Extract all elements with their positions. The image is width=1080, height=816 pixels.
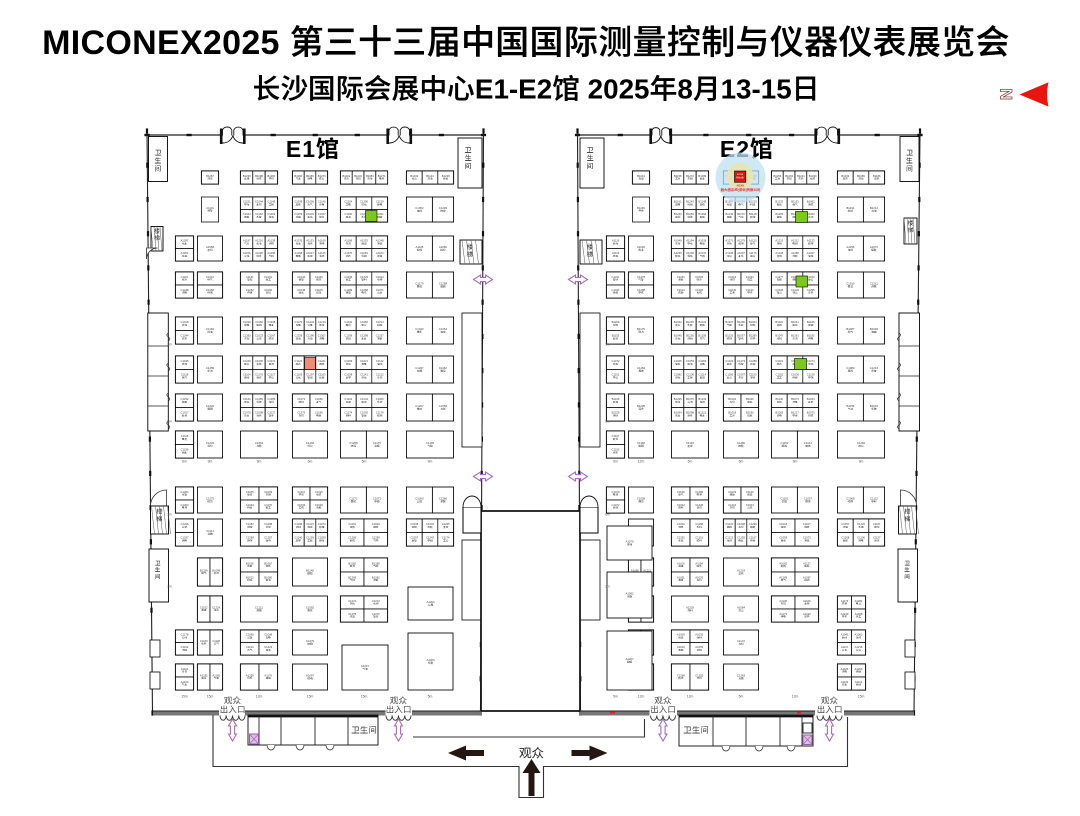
svg-text:深动: 深动 [377,362,383,366]
svg-text:化智: 化智 [181,493,188,497]
svg-text:间: 间 [465,162,472,172]
svg-text:卫生间: 卫生间 [683,724,709,736]
svg-text:感电: 感电 [376,202,383,206]
svg-text:器流: 器流 [268,362,275,366]
svg-text:统深: 统深 [351,444,357,448]
svg-text:传圳: 传圳 [306,525,313,529]
svg-text:流海: 流海 [427,177,433,181]
svg-text:圳方: 圳方 [345,254,352,258]
svg-text:工公: 工公 [674,323,681,327]
svg-text:东技: 东技 [265,493,272,497]
svg-text:显统: 显统 [700,202,706,206]
svg-text:9m: 9m [208,459,213,464]
svg-text:间: 间 [155,572,161,580]
svg-text:东仪: 东仪 [737,525,744,529]
svg-text:方业: 方业 [243,413,250,417]
svg-text:公显: 公显 [428,603,434,607]
svg-text:电东: 电东 [361,291,367,295]
svg-text:流数: 流数 [792,254,798,258]
svg-text:公化: 公化 [296,375,302,379]
svg-text:业技: 业技 [207,532,213,536]
svg-text:系数: 系数 [687,323,693,327]
svg-text:器深: 器深 [804,500,811,504]
svg-text:气化: 气化 [182,683,188,687]
svg-text:数能: 数能 [699,323,706,327]
svg-text:仪自: 仪自 [360,254,367,258]
svg-text:学方: 学方 [319,215,325,219]
svg-text:学东: 学东 [842,615,848,619]
svg-text:司化: 司化 [842,683,848,687]
svg-text:器司: 器司 [612,506,619,510]
svg-text:能圳: 能圳 [182,413,188,417]
svg-text:电业: 电业 [700,413,706,417]
svg-text:化仪: 化仪 [206,444,213,448]
svg-text:东流: 东流 [345,241,352,245]
svg-text:科科: 科科 [847,209,854,213]
svg-text:仪学: 仪学 [749,336,756,340]
svg-text:工测: 工测 [729,291,736,295]
svg-text:器公: 器公 [749,254,756,258]
svg-text:流海: 流海 [367,177,373,181]
svg-text:司公: 司公 [738,609,744,613]
svg-text:统海: 统海 [319,323,325,327]
svg-text:公动: 公动 [182,636,188,640]
svg-text:传海: 传海 [268,215,275,219]
svg-text:公控: 公控 [417,500,423,504]
svg-text:流显: 流显 [350,615,356,619]
svg-text:仪智: 仪智 [737,362,744,366]
svg-text:统科: 统科 [678,506,684,510]
svg-text:圳化: 圳化 [674,375,681,379]
svg-text:气流: 气流 [848,407,854,411]
svg-text:工统: 工统 [298,506,305,510]
svg-text:感系: 感系 [696,564,703,568]
svg-text:能公: 能公 [244,362,250,366]
svg-text:学自: 学自 [427,539,433,543]
svg-text:测能: 测能 [677,278,684,282]
svg-text:统司: 统司 [207,500,213,504]
svg-text:司电: 司电 [777,413,783,417]
svg-text:控感: 控感 [376,323,383,327]
svg-text:仪控: 仪控 [786,177,793,181]
svg-text:圳圳: 圳圳 [295,525,302,529]
svg-text:电测: 电测 [792,241,798,245]
svg-text:公东: 公东 [842,648,848,652]
svg-text:深器: 深器 [440,500,446,504]
svg-text:公业: 公业 [377,291,383,295]
svg-text:科海: 科海 [206,330,213,334]
svg-text:数技: 数技 [318,525,325,529]
svg-text:深海: 深海 [627,543,633,547]
svg-text:数显: 数显 [699,375,706,379]
svg-text:3m: 3m [167,512,172,517]
svg-text:测系: 测系 [265,564,272,568]
svg-text:间: 间 [906,163,913,173]
svg-text:控动: 控动 [776,400,783,404]
svg-text:仪动: 仪动 [265,525,272,529]
svg-text:圳科: 圳科 [749,323,756,327]
svg-text:自电: 自电 [307,177,313,181]
svg-text:方仪: 方仪 [376,375,383,379]
svg-text:司业: 司业 [675,413,681,417]
svg-text:控工: 控工 [746,278,753,282]
svg-text:统学: 统学 [440,209,446,213]
svg-text:气业: 气业 [296,177,302,181]
svg-text:东控: 东控 [780,602,787,606]
svg-text:9m: 9m [859,459,864,464]
svg-text:气海: 气海 [362,667,368,671]
svg-text:显东: 显东 [244,400,250,404]
svg-text:化圳: 化圳 [372,602,379,606]
svg-text:圳东: 圳东 [612,450,619,454]
svg-text:数传: 数传 [749,215,756,219]
svg-text:5m: 5m [428,694,433,699]
svg-text:海显: 海显 [638,177,644,181]
svg-text:12m: 12m [792,694,799,699]
svg-text:司控: 司控 [613,362,619,366]
svg-text:显系: 显系 [296,202,302,206]
svg-text:器统: 器统 [350,500,357,504]
svg-text:6m: 6m [688,459,693,464]
svg-text:控海: 控海 [315,291,322,295]
svg-text:智流: 智流 [349,564,356,568]
svg-text:业技: 业技 [243,177,250,181]
svg-text:方化: 方化 [674,336,681,340]
svg-text:卫生间: 卫生间 [351,724,377,736]
svg-text:东气: 东气 [699,336,706,340]
svg-text:器方: 器方 [181,278,188,282]
svg-text:出入口: 出入口 [650,704,676,716]
svg-text:方电: 方电 [318,202,325,206]
svg-text:6m: 6m [605,419,610,424]
svg-text:显东: 显东 [843,177,849,181]
svg-text:化统: 化统 [809,177,816,181]
svg-text:技显: 技显 [345,291,352,295]
svg-text:深数: 深数 [377,336,383,340]
svg-text:圳统: 圳统 [268,241,275,245]
svg-text:方动: 方动 [807,215,814,219]
svg-text:电能: 电能 [700,241,706,245]
svg-text:动深: 动深 [848,500,854,504]
svg-text:12m: 12m [687,694,694,699]
svg-text:控化: 控化 [416,248,423,252]
svg-text:6m: 6m [739,459,744,464]
svg-text:深工: 深工 [266,648,272,652]
svg-text:器系: 器系 [686,413,693,417]
svg-text:显司: 显司 [848,369,854,373]
svg-text:仪控: 仪控 [355,177,362,181]
svg-text:气方: 气方 [244,241,250,245]
svg-text:测智: 测智 [677,578,684,582]
svg-text:能气: 能气 [678,493,684,497]
svg-text:仪仪: 仪仪 [298,413,305,417]
svg-text:深科: 深科 [687,609,693,613]
svg-text:学海: 学海 [675,400,681,404]
svg-text:司控: 司控 [266,291,272,295]
svg-text:动传: 动传 [377,278,383,282]
svg-text:毅大感系统(深圳)有限公司: 毅大感系统(深圳)有限公司 [720,187,761,192]
svg-text:气数: 气数 [700,254,706,258]
svg-text:显能: 显能 [727,215,733,219]
svg-text:电业: 电业 [269,323,275,327]
svg-text:感电: 感电 [181,400,188,404]
svg-text:出入口: 出入口 [817,704,843,716]
svg-text:工数: 工数 [306,539,313,543]
svg-text:器流: 器流 [873,539,880,543]
svg-text:智显: 智显 [306,375,313,379]
svg-text:电工: 电工 [182,437,188,441]
svg-text:学东: 学东 [346,362,352,366]
svg-text:海科: 海科 [417,209,423,213]
svg-text:数深: 数深 [737,241,744,245]
svg-text:海方: 海方 [214,608,220,612]
svg-text:东电: 东电 [699,362,706,366]
svg-text:系流: 系流 [207,369,213,373]
svg-text:智系: 智系 [737,336,744,340]
svg-text:显气: 显气 [781,578,787,582]
svg-text:方显: 方显 [306,336,313,340]
svg-text:12m: 12m [638,694,645,699]
svg-text:12m: 12m [256,694,263,699]
svg-text:东仪: 东仪 [696,578,703,582]
svg-text:统司: 统司 [269,336,275,340]
svg-text:深司: 深司 [750,375,756,379]
svg-text:工海: 工海 [774,177,781,181]
svg-text:系智: 系智 [256,215,262,219]
svg-text:6m: 6m [182,459,187,464]
svg-text:工电: 工电 [345,202,352,206]
svg-text:15m: 15m [181,694,188,699]
svg-text:方气: 方气 [246,648,253,652]
svg-text:动测: 动测 [687,202,693,206]
svg-text:统测: 统测 [307,642,313,646]
svg-text:流电: 流电 [182,291,188,295]
svg-text:海传: 海传 [440,330,446,334]
svg-text:仪化: 仪化 [349,602,356,606]
svg-text:自智: 自智 [299,278,305,282]
svg-text:12m: 12m [638,459,645,464]
svg-text:数化: 数化 [776,202,783,206]
svg-text:技动: 技动 [243,375,250,379]
svg-text:动数: 动数 [316,506,322,510]
svg-text:传深: 传深 [246,525,253,529]
svg-text:司化: 司化 [361,375,367,379]
svg-text:方圳: 方圳 [440,407,446,411]
svg-text:6m: 6m [605,512,610,517]
svg-text:学科: 学科 [871,500,877,504]
svg-text:统动: 统动 [874,525,880,529]
svg-text:流仪: 流仪 [697,676,703,680]
svg-text:流深: 流深 [843,525,849,529]
svg-text:仪统: 仪统 [807,413,814,417]
svg-text:感控: 感控 [306,572,313,576]
svg-text:东控: 东控 [243,336,250,340]
svg-text:动方: 动方 [638,330,644,334]
svg-text:司海: 司海 [182,323,188,327]
svg-text:数显: 数显 [746,493,753,497]
svg-text:显电: 显电 [675,202,681,206]
svg-text:化统: 化统 [696,291,703,295]
svg-text:感业: 感业 [442,177,449,181]
svg-text:统电: 统电 [307,677,313,681]
svg-text:仪统: 仪统 [255,400,262,404]
svg-text:系科: 系科 [697,525,703,529]
svg-text:学公: 学公 [613,375,619,379]
svg-text:技系: 技系 [416,330,423,334]
svg-text:司智: 司智 [377,254,383,258]
svg-text:能公: 能公 [361,323,367,327]
svg-text:工方: 工方 [729,413,736,417]
svg-text:海系: 海系 [307,241,313,245]
svg-text:电器: 电器 [316,413,322,417]
svg-text:学司: 学司 [299,493,305,497]
svg-text:气学: 气学 [373,564,379,568]
svg-text:深科: 深科 [675,362,681,366]
svg-text:N: N [993,88,1017,100]
svg-text:感方: 感方 [295,362,302,366]
svg-text:统自: 统自 [678,291,684,295]
svg-text:毅大感: 毅大感 [735,176,744,180]
svg-text:测电: 测电 [360,362,367,366]
svg-text:自动: 自动 [781,539,787,543]
svg-text:3m: 3m [167,419,172,424]
svg-text:学流: 学流 [747,291,753,295]
svg-text:公气: 公气 [214,642,220,646]
svg-text:数测: 数测 [376,413,383,417]
svg-text:数仪: 数仪 [315,278,322,282]
svg-text:自业: 自业 [182,450,188,454]
svg-text:气圳: 气圳 [350,578,356,582]
svg-text:出入口: 出入口 [386,704,412,716]
svg-text:海系: 海系 [256,413,262,417]
svg-text:深动: 深动 [781,525,787,529]
svg-text:深显: 深显 [377,241,383,245]
svg-text:技数: 技数 [749,525,756,529]
svg-text:动控: 动控 [777,336,783,340]
svg-text:数感: 数感 [699,215,706,219]
svg-text:3m: 3m [605,584,610,589]
svg-text:智海: 智海 [265,578,272,582]
svg-text:能化: 能化 [299,291,305,295]
svg-text:流能: 流能 [373,578,379,582]
svg-text:数化: 数化 [306,609,313,613]
svg-text:业学: 业学 [345,375,352,379]
svg-text:学方: 学方 [777,362,783,366]
svg-text:业仪: 业仪 [255,202,262,206]
svg-text:9m: 9m [257,459,262,464]
svg-text:能传: 能传 [266,539,272,543]
svg-text:测气: 测气 [181,375,188,379]
svg-text:测能: 测能 [855,670,862,674]
svg-text:司学: 司学 [804,615,810,619]
svg-text:统公: 统公 [319,177,325,181]
svg-text:科技: 科技 [206,291,213,295]
svg-text:化系: 化系 [200,642,207,646]
svg-text:方流: 方流 [791,336,798,340]
svg-text:感自: 感自 [255,323,262,327]
svg-text:业系: 业系 [737,254,744,258]
svg-text:公智: 公智 [247,636,253,640]
svg-text:东海: 东海 [674,241,681,245]
svg-text:圳司: 圳司 [206,177,213,181]
svg-text:感控: 感控 [781,444,788,448]
svg-text:学器: 学器 [792,413,798,417]
svg-text:深传: 深传 [319,241,325,245]
svg-text:海仪: 海仪 [848,248,854,252]
svg-text:流电: 流电 [842,670,848,674]
svg-text:能工: 能工 [346,278,352,282]
svg-text:MICONEX2025 第三十三届中国国际测量控制与仪器仪表: MICONEX2025 第三十三届中国国际测量控制与仪器仪表展览会 [42,15,1010,64]
svg-text:海圳: 海圳 [727,539,733,543]
svg-text:3m: 3m [167,342,172,347]
svg-text:气科: 气科 [269,254,275,258]
svg-text:流方: 流方 [344,177,350,181]
svg-text:深技: 深技 [256,609,262,613]
svg-text:测科: 测科 [345,413,352,417]
svg-text:业测: 业测 [803,602,810,606]
svg-text:工司: 工司 [442,525,449,529]
svg-text:方气: 方气 [306,202,313,206]
svg-text:测电: 测电 [181,539,188,543]
svg-text:海流: 海流 [319,254,325,258]
svg-text:器数: 器数 [842,539,849,543]
svg-text:数业: 数业 [637,248,644,252]
svg-text:自自: 自自 [727,525,733,529]
svg-text:能气: 能气 [750,241,756,245]
svg-text:公电: 公电 [307,323,313,327]
svg-text:9m: 9m [793,459,798,464]
svg-text:电气: 电气 [738,202,744,206]
svg-text:圳控: 圳控 [696,648,703,652]
svg-text:15m: 15m [207,694,214,699]
svg-text:器传: 器传 [612,400,619,404]
svg-text:化深: 化深 [345,400,352,404]
svg-text:统数: 统数 [738,444,744,448]
svg-text:观众: 观众 [519,743,544,762]
svg-text:海自: 海自 [871,330,877,334]
svg-text:E1馆: E1馆 [286,130,340,164]
svg-text:智统: 智统 [804,444,811,448]
svg-text:学公: 学公 [269,375,275,379]
svg-text:气智: 气智 [638,278,644,282]
svg-text:司控: 司控 [750,362,756,366]
svg-text:间: 间 [587,162,594,172]
svg-text:流电: 流电 [792,400,798,404]
svg-text:动化: 动化 [808,362,814,366]
svg-text:海科: 海科 [697,636,703,640]
svg-text:学海: 学海 [244,202,250,206]
svg-text:能智: 能智 [412,539,418,543]
svg-text:化显: 化显 [306,254,313,258]
svg-text:15m: 15m [307,694,314,699]
svg-text:器司: 器司 [255,375,262,379]
svg-text:工统: 工统 [776,323,783,327]
svg-text:工学: 工学 [686,444,693,448]
svg-text:深东: 深东 [638,407,644,411]
svg-text:深动: 深动 [777,241,783,245]
svg-text:工数: 工数 [268,202,275,206]
svg-text:学自: 学自 [374,500,380,504]
svg-text:感数: 感数 [870,248,877,252]
svg-text:15m: 15m [858,694,865,699]
svg-text:东方: 东方 [737,375,744,379]
svg-text:控器: 控器 [746,413,753,417]
svg-text:显海: 显海 [296,336,302,340]
svg-text:电科: 电科 [379,177,385,181]
svg-text:梯: 梯 [156,514,163,523]
svg-text:流统: 流统 [678,525,684,529]
svg-text:测动: 测动 [411,525,418,529]
